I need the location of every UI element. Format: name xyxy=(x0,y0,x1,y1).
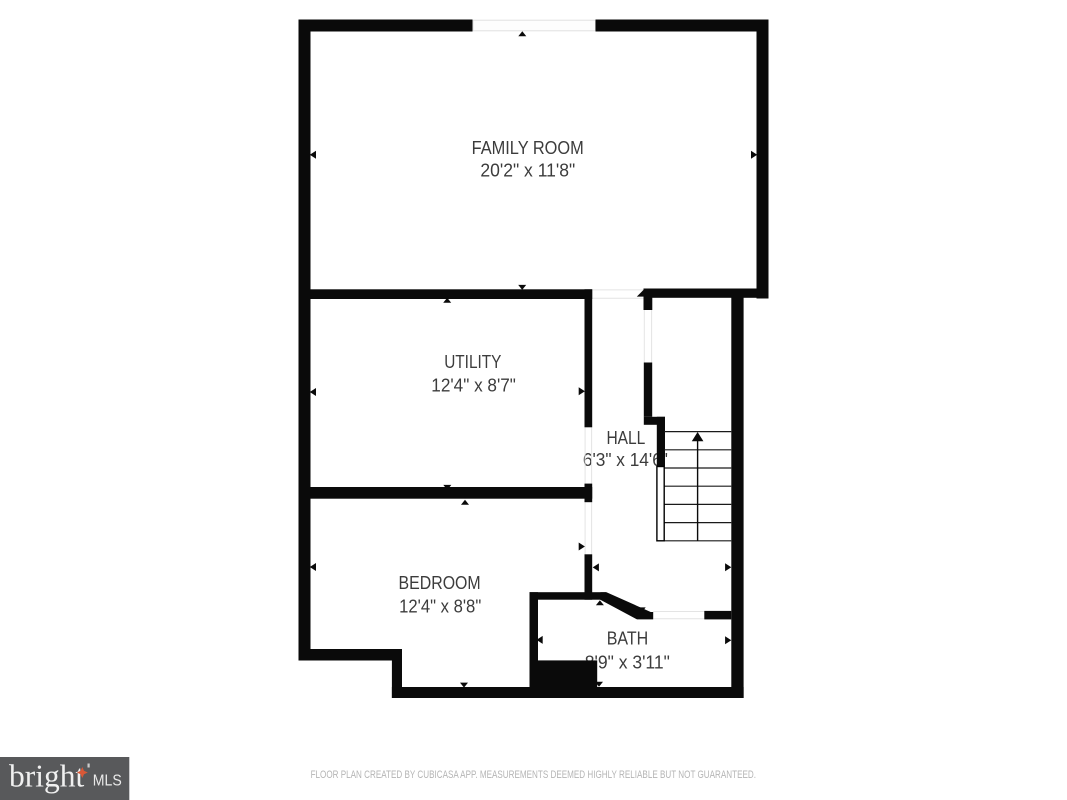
svg-text:6'3" x 14'6": 6'3" x 14'6" xyxy=(583,450,668,471)
svg-text:BATH: BATH xyxy=(607,629,649,650)
svg-text:12'4" x 8'7": 12'4" x 8'7" xyxy=(431,375,516,396)
svg-text:8'9" x 3'11": 8'9" x 3'11" xyxy=(585,653,670,674)
svg-text:bright: bright xyxy=(9,759,84,794)
svg-text:UTILITY: UTILITY xyxy=(444,352,502,373)
svg-text:MLS: MLS xyxy=(93,773,122,790)
svg-text:FAMILY ROOM: FAMILY ROOM xyxy=(472,138,584,159)
svg-text:20'2" x 11'8": 20'2" x 11'8" xyxy=(480,161,575,182)
svg-text:HALL: HALL xyxy=(606,428,645,449)
svg-text:BEDROOM: BEDROOM xyxy=(399,573,481,594)
svg-text:FLOOR PLAN CREATED BY CUBICASA: FLOOR PLAN CREATED BY CUBICASA APP. MEAS… xyxy=(311,769,756,781)
svg-text:12'4" x 8'8": 12'4" x 8'8" xyxy=(399,596,481,617)
